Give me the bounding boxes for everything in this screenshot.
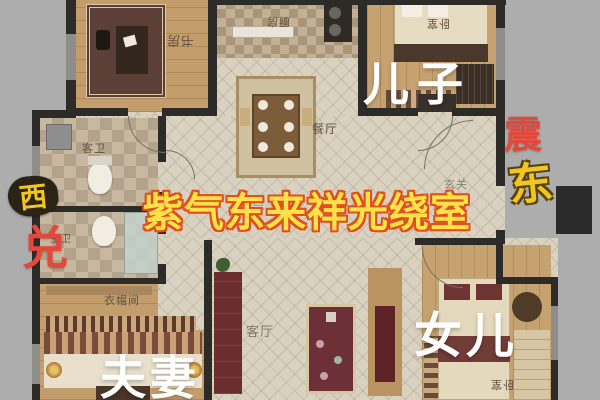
compass-east-char: 东 <box>505 146 555 214</box>
wall-living-left <box>204 240 212 400</box>
room-label-cloakroom: 衣帽间 <box>104 292 140 308</box>
room-label-kitchen: 厨房 <box>266 14 290 30</box>
wall-bedroom-bottom-step-v <box>496 238 503 282</box>
rug-flower-2 <box>334 356 342 364</box>
room-label-dining: 餐厅 <box>312 120 338 137</box>
label-daughter: 女儿 <box>414 296 518 366</box>
study-desk <box>116 26 148 74</box>
tv-panel <box>375 306 395 382</box>
plate-4 <box>284 122 294 132</box>
label-son: 儿子 <box>363 48 471 114</box>
plate-5 <box>258 142 268 152</box>
stove-burner-2 <box>329 24 341 36</box>
wall-study-kitchen <box>208 0 217 116</box>
room-label-bedroom-top: 卧室 <box>426 16 450 32</box>
window-bedroom-top-right <box>496 28 505 80</box>
wall-study-bottom-a <box>76 108 128 116</box>
toilet-master <box>92 216 116 246</box>
wall-bedroom-bottom-step-h <box>496 277 558 284</box>
rug-flower-3 <box>320 372 328 380</box>
washing-machine <box>46 124 72 150</box>
wall-study-bottom-b <box>162 108 217 116</box>
label-couple: 夫妻 <box>100 342 200 400</box>
wall-bedroom-bottom-top <box>415 238 503 245</box>
stove-burner-1 <box>329 7 341 19</box>
rug-motif <box>326 312 336 322</box>
wall-cloakroom-top <box>32 278 162 284</box>
plate-2 <box>284 100 294 110</box>
dining-chair-right <box>302 108 312 126</box>
study-chair <box>96 30 110 50</box>
blessing-text: 紫气东来祥光绕室 <box>143 180 471 238</box>
window-bedroom-left <box>32 344 40 384</box>
wall-top <box>208 0 506 5</box>
toilet-guest <box>88 162 112 194</box>
toilet-guest-tank <box>88 156 112 165</box>
room-label-bedroom-bottom: 卧室 <box>490 377 514 393</box>
window-study-left <box>66 34 76 80</box>
room-label-living: 客厅 <box>246 321 274 340</box>
rug-flower-1 <box>316 340 324 348</box>
room-label-guest-bath: 客卫 <box>82 140 106 156</box>
bed-top-pillow-1 <box>402 4 422 17</box>
wardrobe-bottom <box>514 330 550 400</box>
dining-chair-left <box>240 108 250 126</box>
compass-west-char: 西 <box>17 175 49 218</box>
entry-porch <box>556 186 592 234</box>
room-label-study: 书房 <box>166 32 194 51</box>
plate-6 <box>284 142 294 152</box>
compass-dui-char: 兑 <box>22 212 68 278</box>
plate-3 <box>258 122 268 132</box>
plate-1 <box>258 100 268 110</box>
lamp-left <box>46 362 62 378</box>
window-bedroom-bottom-right <box>551 306 558 360</box>
sofa <box>214 272 242 394</box>
fengshui-floorplan-scene: 书房 厨房 卧室 餐厅 客卫 主卫 衣帽间 客厅 玄关 卧室 点击关注 紫气东来… <box>0 0 600 400</box>
